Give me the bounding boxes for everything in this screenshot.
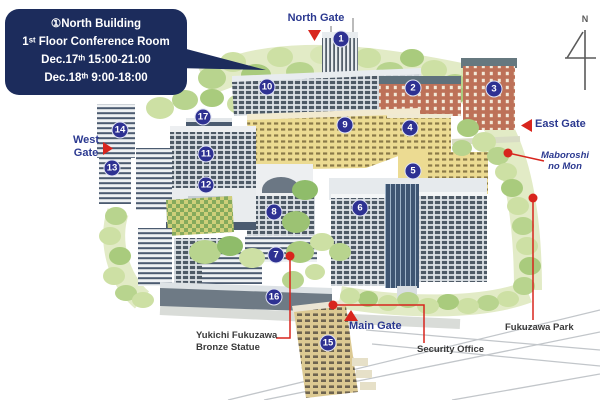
building-marker-15: 15 xyxy=(320,335,337,352)
compass-north-arrow xyxy=(565,30,596,90)
north-gate-label: North Gate xyxy=(272,12,360,24)
statue-line1: Yukichi Fukuzawa xyxy=(196,330,277,342)
campus-map: N ①North Building 1ˢᵗ Floor Conference R… xyxy=(0,0,600,400)
statue-dot xyxy=(286,252,295,261)
building-marker-4: 4 xyxy=(402,120,419,137)
building-marker-12: 12 xyxy=(198,177,215,194)
building-marker-7: 7 xyxy=(268,247,285,264)
fukuzawa-statue-label: Yukichi Fukuzawa Bronze Statue xyxy=(196,330,277,354)
building-marker-6: 6 xyxy=(352,200,369,217)
maboroshi-dot xyxy=(504,149,513,158)
west-gate-line2: Gate xyxy=(66,147,106,160)
park-dot xyxy=(529,194,538,203)
main-gate-label: Main Gate xyxy=(349,320,402,332)
building-marker-16: 16 xyxy=(266,289,283,306)
building-6-shape xyxy=(329,178,487,302)
event-info-callout: ①North Building 1ˢᵗ Floor Conference Roo… xyxy=(5,9,187,95)
north-gate-arrow xyxy=(308,30,321,41)
security-office-label: Security Office xyxy=(417,344,484,356)
building-marker-11: 11 xyxy=(198,146,215,163)
building-marker-3: 3 xyxy=(486,81,503,98)
building-4-shape xyxy=(387,114,451,154)
maboroshi-line2: no Mon xyxy=(532,161,598,172)
building-marker-17: 17 xyxy=(195,109,212,126)
building-marker-13: 13 xyxy=(104,160,121,177)
fukuzawa-park-label: Fukuzawa Park xyxy=(505,322,574,334)
maboroshi-no-mon-label: Maboroshi no Mon xyxy=(532,150,598,173)
building-marker-8: 8 xyxy=(266,204,283,221)
statue-line2: Bronze Statue xyxy=(196,342,277,354)
security-dot xyxy=(329,301,338,310)
west-gate-label: West Gate xyxy=(66,134,106,159)
building-marker-1: 1 xyxy=(333,31,350,48)
east-gate-arrow xyxy=(521,119,532,132)
building-marker-5: 5 xyxy=(405,163,422,180)
building-sw-tower xyxy=(138,228,172,286)
building-marker-2: 2 xyxy=(405,80,422,97)
callout-schedule-day2: Dec.18ᵗʰ 9:00-18:00 xyxy=(44,70,147,88)
maboroshi-line1: Maboroshi xyxy=(532,150,598,161)
east-gate-label: East Gate xyxy=(535,118,586,130)
callout-room: 1ˢᵗ Floor Conference Room xyxy=(22,34,169,52)
building-green-roof xyxy=(166,196,234,236)
callout-schedule-day1: Dec.17ᵗʰ 15:00-21:00 xyxy=(41,52,151,70)
callout-building: ①North Building xyxy=(51,16,141,34)
building-marker-14: 14 xyxy=(112,122,129,139)
building-marker-9: 9 xyxy=(337,117,354,134)
compass-north-label: N xyxy=(582,14,589,24)
building-marker-10: 10 xyxy=(259,79,276,96)
west-gate-line1: West xyxy=(66,134,106,147)
